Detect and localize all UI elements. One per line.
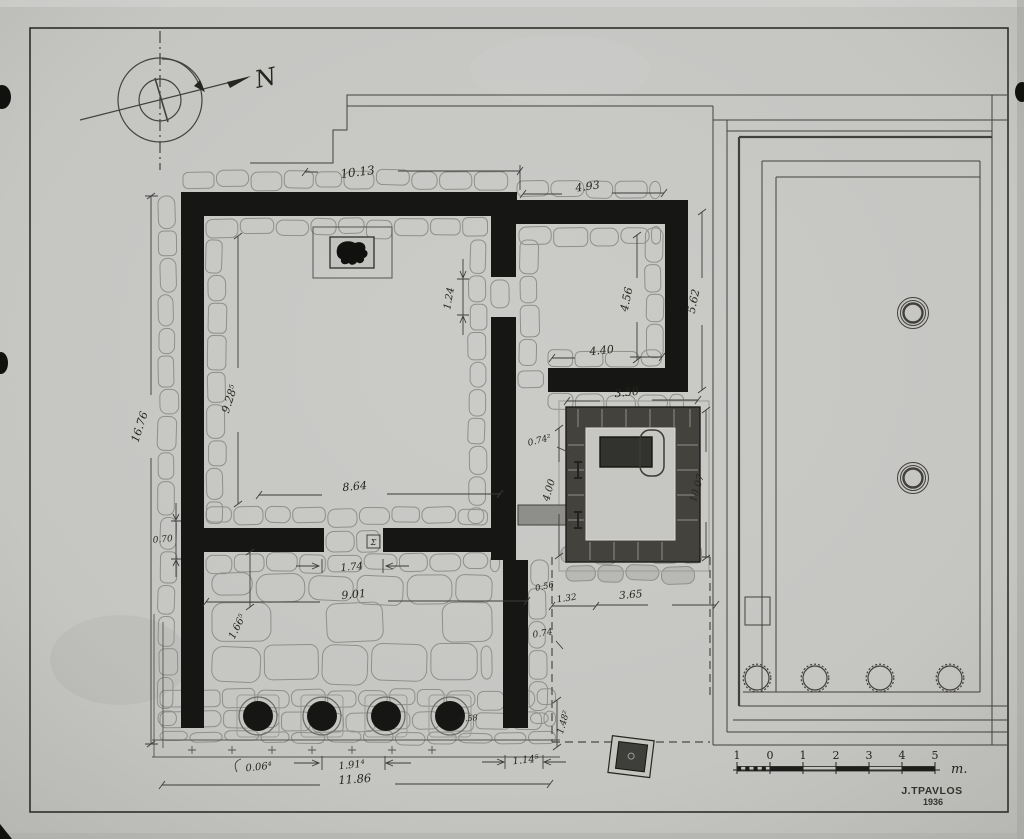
dimension-label-naiskos-bottom-width: 3.65 (619, 588, 644, 602)
dimension-label-naiskos-top-width: 3.50 (614, 385, 640, 400)
naiskos-altar-block (600, 437, 652, 467)
paper-edge-top (0, 0, 1024, 7)
scale-checker-cell (762, 767, 766, 772)
dimension-label-annex-bottom-width: 4.40 (588, 343, 615, 359)
scale-tick-label: 2 (833, 749, 840, 762)
cross-wall-left (204, 528, 324, 552)
dimension-label-cella-door-width: 1.74 (340, 561, 363, 574)
temple-west-wall (181, 192, 204, 728)
statue-base-rock (337, 241, 368, 265)
dimension-label-pronaos-inner-width: 9.01 (341, 587, 367, 602)
foundation-stone (661, 566, 695, 584)
scale-unit-label: m. (951, 762, 967, 777)
paper-edge-bottom (0, 833, 1024, 839)
foundation-stone (566, 565, 596, 581)
paper-edge-right (1017, 0, 1024, 839)
signature-year: 1936 (923, 797, 943, 807)
dimension-label-column-diameter: 0.58 (459, 713, 478, 724)
dimension-label-cella-inner-width: 8.64 (342, 479, 368, 494)
temple-east-wall-upper (491, 192, 516, 277)
signature-name: J.TPAVLOS (901, 785, 962, 797)
temple-north-wall (183, 192, 517, 216)
scale-tick-label: 3 (866, 749, 873, 762)
annex-east-wall (665, 200, 688, 392)
annex-north-wall (516, 200, 688, 224)
altar-base-top (616, 742, 648, 772)
scale-checker-cell (754, 767, 758, 772)
scale-tick-label: 5 (932, 749, 939, 762)
site-plan-drawing: N (0, 0, 1024, 839)
scale-tick-label: 0 (767, 749, 774, 762)
column-drum (371, 701, 401, 731)
paper-stain (50, 615, 190, 705)
temple-east-wall-lower (503, 560, 528, 728)
scale-tick-label: 1 (734, 749, 741, 762)
cross-wall-right (383, 528, 491, 552)
tilted-altar-base (608, 736, 654, 778)
column-drum (243, 701, 273, 731)
temple-east-wall-mid (491, 317, 516, 560)
column-drum (307, 701, 337, 731)
scale-tick-label: 1 (800, 749, 807, 762)
scale-checker-cell (745, 767, 749, 772)
dimension-label-cross-wall-thickness: 0.70 (152, 534, 173, 546)
scale-checker-cell (737, 767, 741, 772)
scanned-plan-sheet: N (0, 0, 1024, 839)
dimension-label-threshold-mark: Σ (370, 538, 377, 547)
naiskos-connecting-wall (518, 505, 568, 525)
dimension-label-front-total-width: 11.86 (338, 771, 372, 787)
foundation-stone (598, 565, 624, 582)
scale-tick-label: 4 (899, 749, 906, 762)
foundation-stone (626, 564, 660, 580)
